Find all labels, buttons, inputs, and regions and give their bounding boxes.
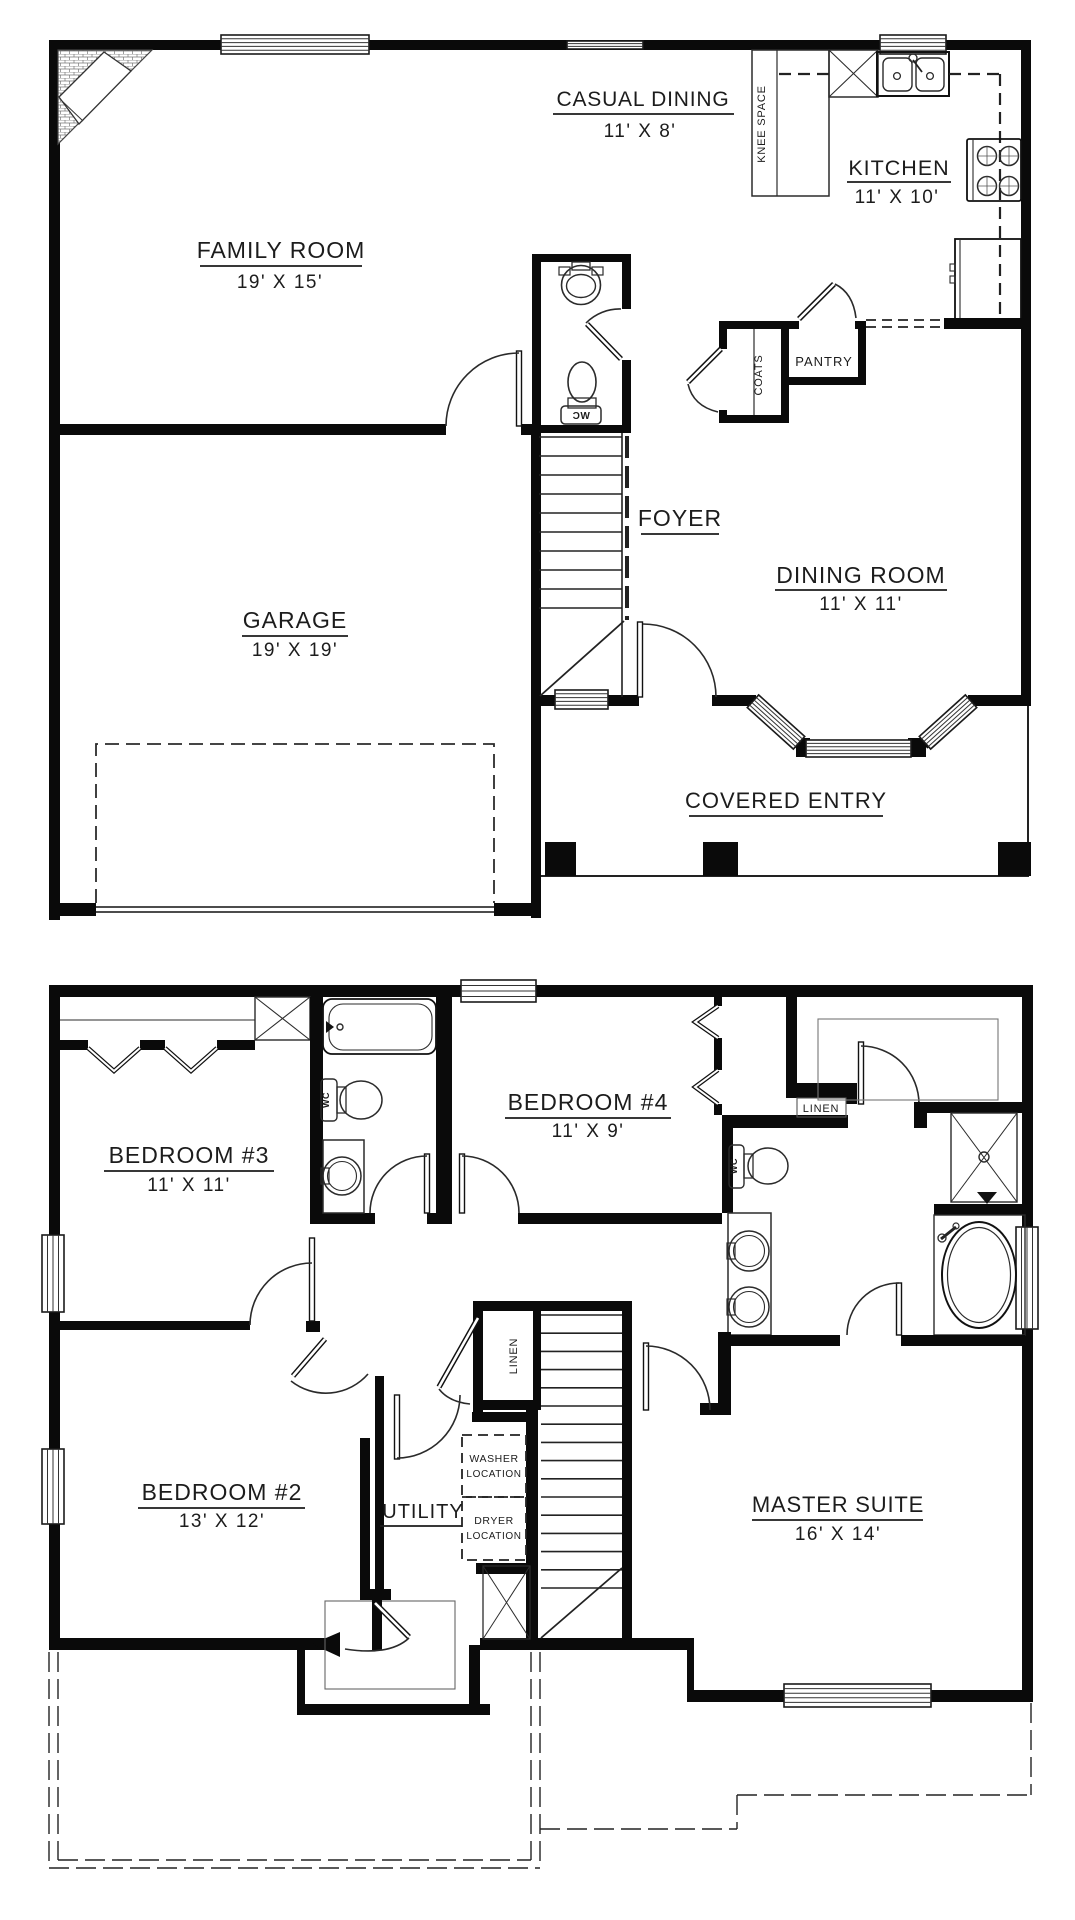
svg-text:DRYER: DRYER <box>474 1515 514 1527</box>
svg-text:FOYER: FOYER <box>638 505 722 531</box>
svg-text:BEDROOM #3: BEDROOM #3 <box>109 1142 270 1168</box>
svg-text:COVERED ENTRY: COVERED ENTRY <box>685 788 887 813</box>
svg-text:11' X 8': 11' X 8' <box>604 121 677 142</box>
svg-text:KNEE SPACE: KNEE SPACE <box>756 85 768 163</box>
svg-text:11' X 11': 11' X 11' <box>819 594 902 615</box>
svg-text:11' X 9': 11' X 9' <box>552 1121 625 1142</box>
svg-text:CASUAL DINING: CASUAL DINING <box>557 88 730 111</box>
svg-text:COATS: COATS <box>753 354 765 395</box>
svg-text:LOCATION: LOCATION <box>466 1469 521 1480</box>
svg-text:DINING ROOM: DINING ROOM <box>776 562 945 588</box>
svg-text:LINEN: LINEN <box>508 1338 520 1374</box>
svg-text:19' X 15': 19' X 15' <box>237 272 323 293</box>
svg-text:WASHER: WASHER <box>469 1453 518 1465</box>
svg-text:UTILITY: UTILITY <box>382 1501 463 1523</box>
svg-text:19' X 19': 19' X 19' <box>252 640 338 661</box>
svg-text:11' X 11': 11' X 11' <box>147 1175 230 1196</box>
svg-text:WC: WC <box>572 411 590 422</box>
svg-text:16' X 14': 16' X 14' <box>795 1524 881 1545</box>
svg-text:WC: WC <box>729 1158 739 1174</box>
svg-text:FAMILY ROOM: FAMILY ROOM <box>197 237 366 263</box>
svg-text:MASTER SUITE: MASTER SUITE <box>752 1492 924 1517</box>
svg-text:PANTRY: PANTRY <box>795 354 853 369</box>
svg-text:WC: WC <box>321 1092 331 1108</box>
svg-text:GARAGE: GARAGE <box>243 607 347 633</box>
svg-text:LINEN: LINEN <box>803 1103 839 1115</box>
svg-text:11' X 10': 11' X 10' <box>855 187 940 208</box>
svg-text:LOCATION: LOCATION <box>466 1531 521 1542</box>
svg-text:KITCHEN: KITCHEN <box>848 156 949 180</box>
svg-text:BEDROOM #2: BEDROOM #2 <box>142 1479 303 1505</box>
svg-text:13' X 12': 13' X 12' <box>179 1511 265 1532</box>
svg-text:BEDROOM #4: BEDROOM #4 <box>508 1089 669 1115</box>
